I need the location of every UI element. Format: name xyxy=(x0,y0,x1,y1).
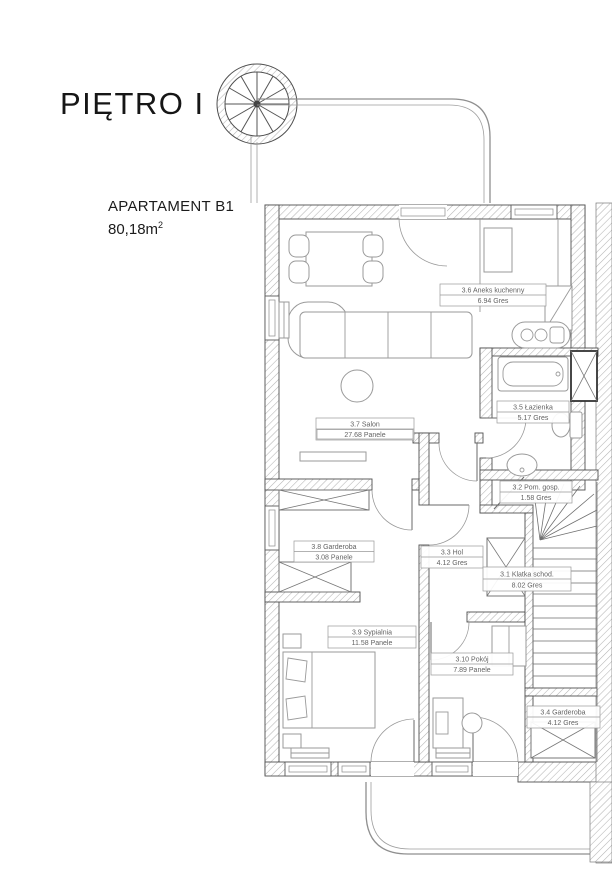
svg-text:3.7 Salon: 3.7 Salon xyxy=(350,422,380,429)
kitchen-cabinet xyxy=(484,228,512,272)
room-label-living: 3.7 Salon27.68 Panele xyxy=(316,418,414,440)
room-label-bedroom: 3.9 Sypialnia11.58 Panele xyxy=(328,626,416,648)
dining-chair xyxy=(363,235,383,257)
window xyxy=(265,506,279,550)
svg-text:3.1 Klatka schod.: 3.1 Klatka schod. xyxy=(500,572,554,579)
svg-text:3.08 Panele: 3.08 Panele xyxy=(315,555,352,562)
radiator xyxy=(279,302,289,338)
svg-text:1.58 Gres: 1.58 Gres xyxy=(521,495,552,502)
svg-text:3.2 Pom. gosp.: 3.2 Pom. gosp. xyxy=(512,485,559,492)
svg-text:3.8 Garderoba: 3.8 Garderoba xyxy=(311,544,356,551)
wardrobe-door xyxy=(372,490,412,530)
room-label-room: 3.10 Pokój7.89 Panele xyxy=(431,653,513,675)
window xyxy=(285,762,331,776)
wardrobe-x xyxy=(279,490,369,510)
room-label-bathroom: 3.5 Łazienka5.17 Gres xyxy=(497,401,569,423)
nightstand xyxy=(283,734,301,748)
terrace-outline-bottom xyxy=(366,782,590,854)
living-hall-door xyxy=(439,443,477,481)
coffee-table xyxy=(341,370,373,402)
bathroom-door xyxy=(486,418,526,458)
hall-wardrobe-door xyxy=(429,505,469,545)
room-label-staircase: 3.1 Klatka schod.8.02 Gres xyxy=(483,567,571,591)
svg-text:3.4 Garderoba: 3.4 Garderoba xyxy=(540,710,585,717)
spiral-staircase-icon xyxy=(217,64,297,144)
room-label-hall: 3.3 Hol4.12 Gres xyxy=(421,546,483,568)
window xyxy=(511,205,557,219)
svg-text:3.9 Sypialnia: 3.9 Sypialnia xyxy=(352,630,392,637)
sofa xyxy=(288,302,472,358)
room-label-wardrobe1: 3.8 Garderoba3.08 Panele xyxy=(294,541,374,562)
svg-text:11.58 Panele: 11.58 Panele xyxy=(352,640,393,647)
desk-chair xyxy=(462,713,482,733)
svg-text:5.17 Gres: 5.17 Gres xyxy=(518,415,549,422)
svg-text:4.12 Gres: 4.12 Gres xyxy=(548,720,579,727)
window xyxy=(338,762,370,776)
dining-chair xyxy=(289,235,309,257)
room-label-utility: 3.2 Pom. gosp.1.58 Gres xyxy=(500,481,572,503)
svg-text:4.12 Gres: 4.12 Gres xyxy=(437,560,468,567)
tv-cabinet xyxy=(300,452,366,461)
vent-shaft xyxy=(571,351,597,401)
svg-text:3.10 Pokój: 3.10 Pokój xyxy=(455,657,489,664)
nightstand xyxy=(283,634,301,648)
bed xyxy=(283,652,375,728)
dining-chair xyxy=(289,261,309,283)
svg-text:6.94 Gres: 6.94 Gres xyxy=(478,298,509,305)
dining-table xyxy=(306,232,372,286)
radiator xyxy=(291,748,329,758)
desk xyxy=(433,698,463,748)
bathtub xyxy=(498,357,568,391)
room-label-wardrobe2: 3.4 Garderoba4.12 Gres xyxy=(527,706,600,728)
wardrobe-x xyxy=(279,562,351,592)
balcony-door xyxy=(399,205,447,266)
window xyxy=(265,296,279,340)
svg-text:27.68 Panele: 27.68 Panele xyxy=(344,432,385,439)
radiator xyxy=(436,748,470,758)
bathroom-sink xyxy=(507,454,537,476)
svg-text:7.89 Panele: 7.89 Panele xyxy=(453,667,490,674)
bedroom-door xyxy=(371,719,414,776)
window xyxy=(432,762,472,776)
floor-plan: 3.6 Aneks kuchenny6.94 Gres 3.7 Salon27.… xyxy=(0,0,612,888)
room-label-kitchen: 3.6 Aneks kuchenny6.94 Gres xyxy=(440,284,546,306)
svg-text:3.3 Hol: 3.3 Hol xyxy=(441,550,464,557)
dining-chair xyxy=(363,261,383,283)
svg-text:3.5 Łazienka: 3.5 Łazienka xyxy=(513,405,553,412)
stove-sink xyxy=(512,322,570,348)
svg-text:8.02 Gres: 8.02 Gres xyxy=(512,583,543,590)
svg-text:3.6 Aneks kuchenny: 3.6 Aneks kuchenny xyxy=(462,288,525,295)
